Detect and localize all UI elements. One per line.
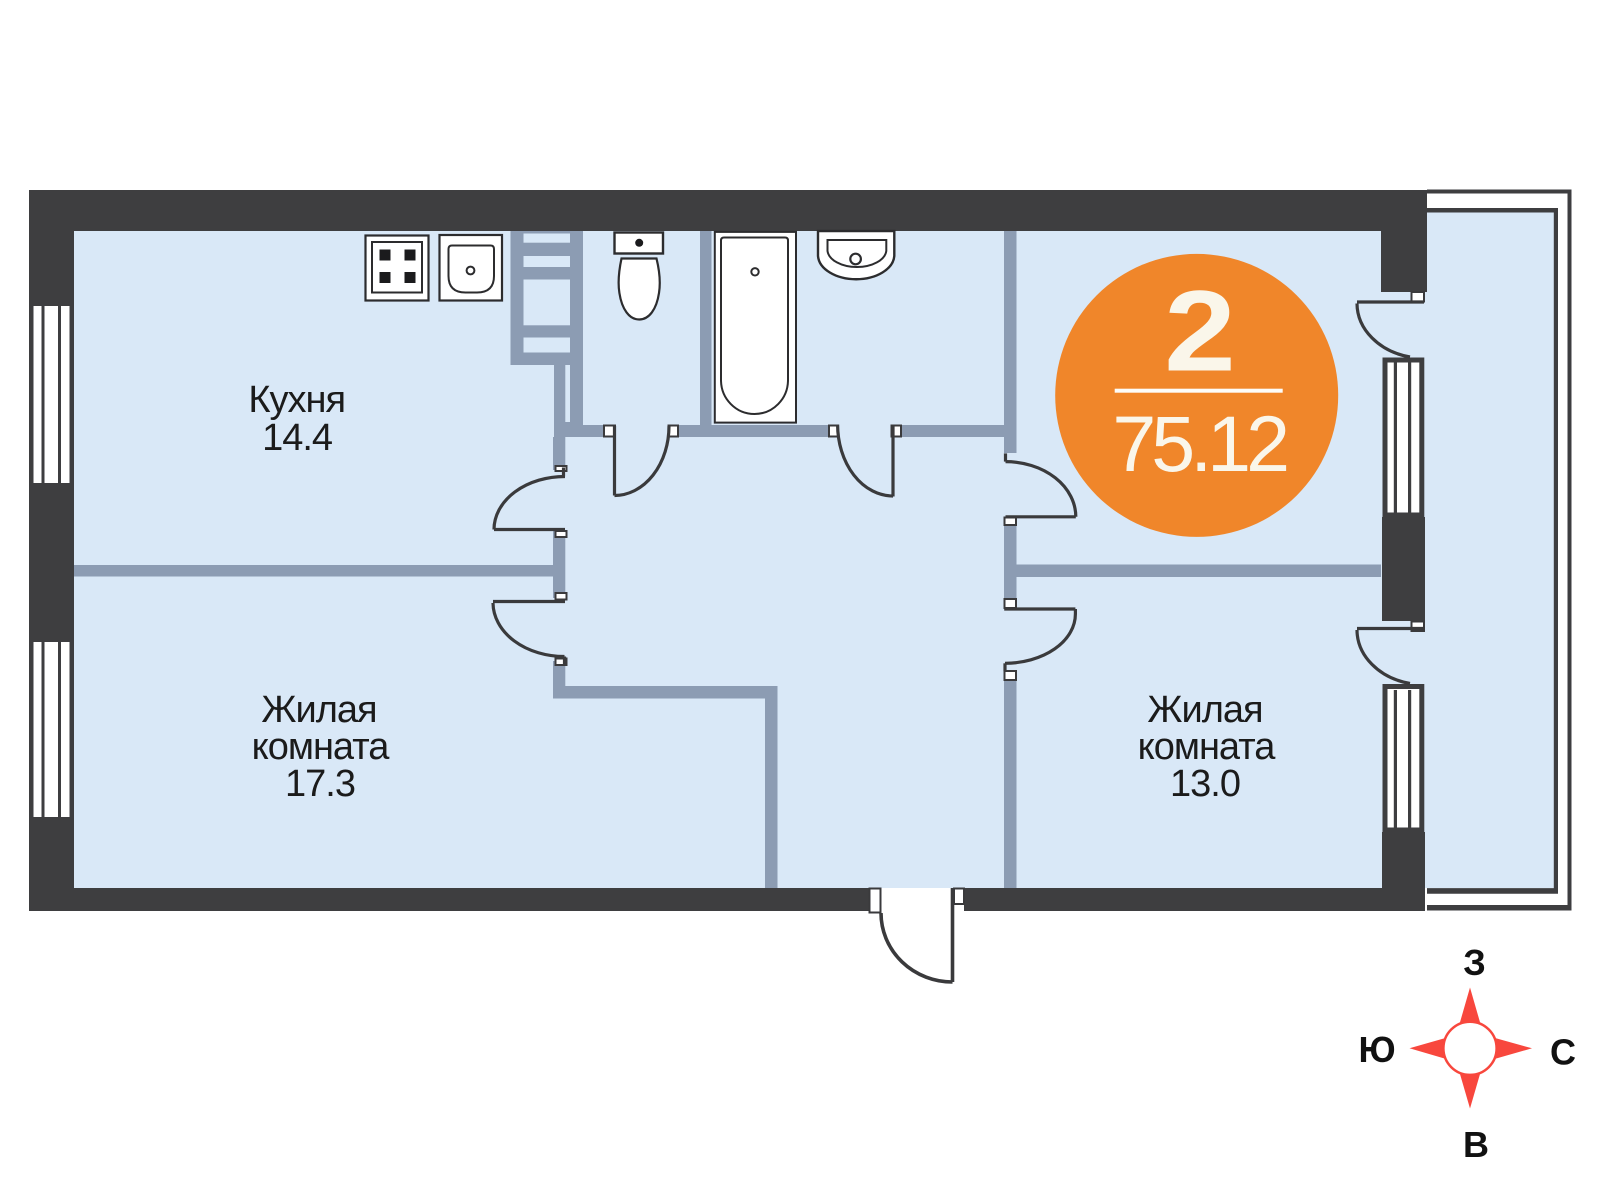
svg-text:2: 2 (1164, 266, 1236, 395)
svg-text:З: З (1463, 942, 1486, 983)
svg-text:комната: комната (1138, 726, 1277, 768)
svg-text:Жилая: Жилая (1147, 689, 1262, 731)
svg-text:17.3: 17.3 (285, 763, 355, 805)
svg-text:Кухня: Кухня (248, 379, 345, 421)
svg-text:14.4: 14.4 (262, 417, 333, 459)
svg-text:13.0: 13.0 (1170, 763, 1240, 805)
svg-text:комната: комната (252, 726, 391, 768)
svg-text:75.12: 75.12 (1112, 399, 1286, 488)
svg-text:С: С (1550, 1031, 1576, 1072)
svg-text:Жилая: Жилая (261, 689, 376, 731)
svg-text:Ю: Ю (1358, 1029, 1395, 1070)
svg-text:В: В (1463, 1124, 1489, 1165)
